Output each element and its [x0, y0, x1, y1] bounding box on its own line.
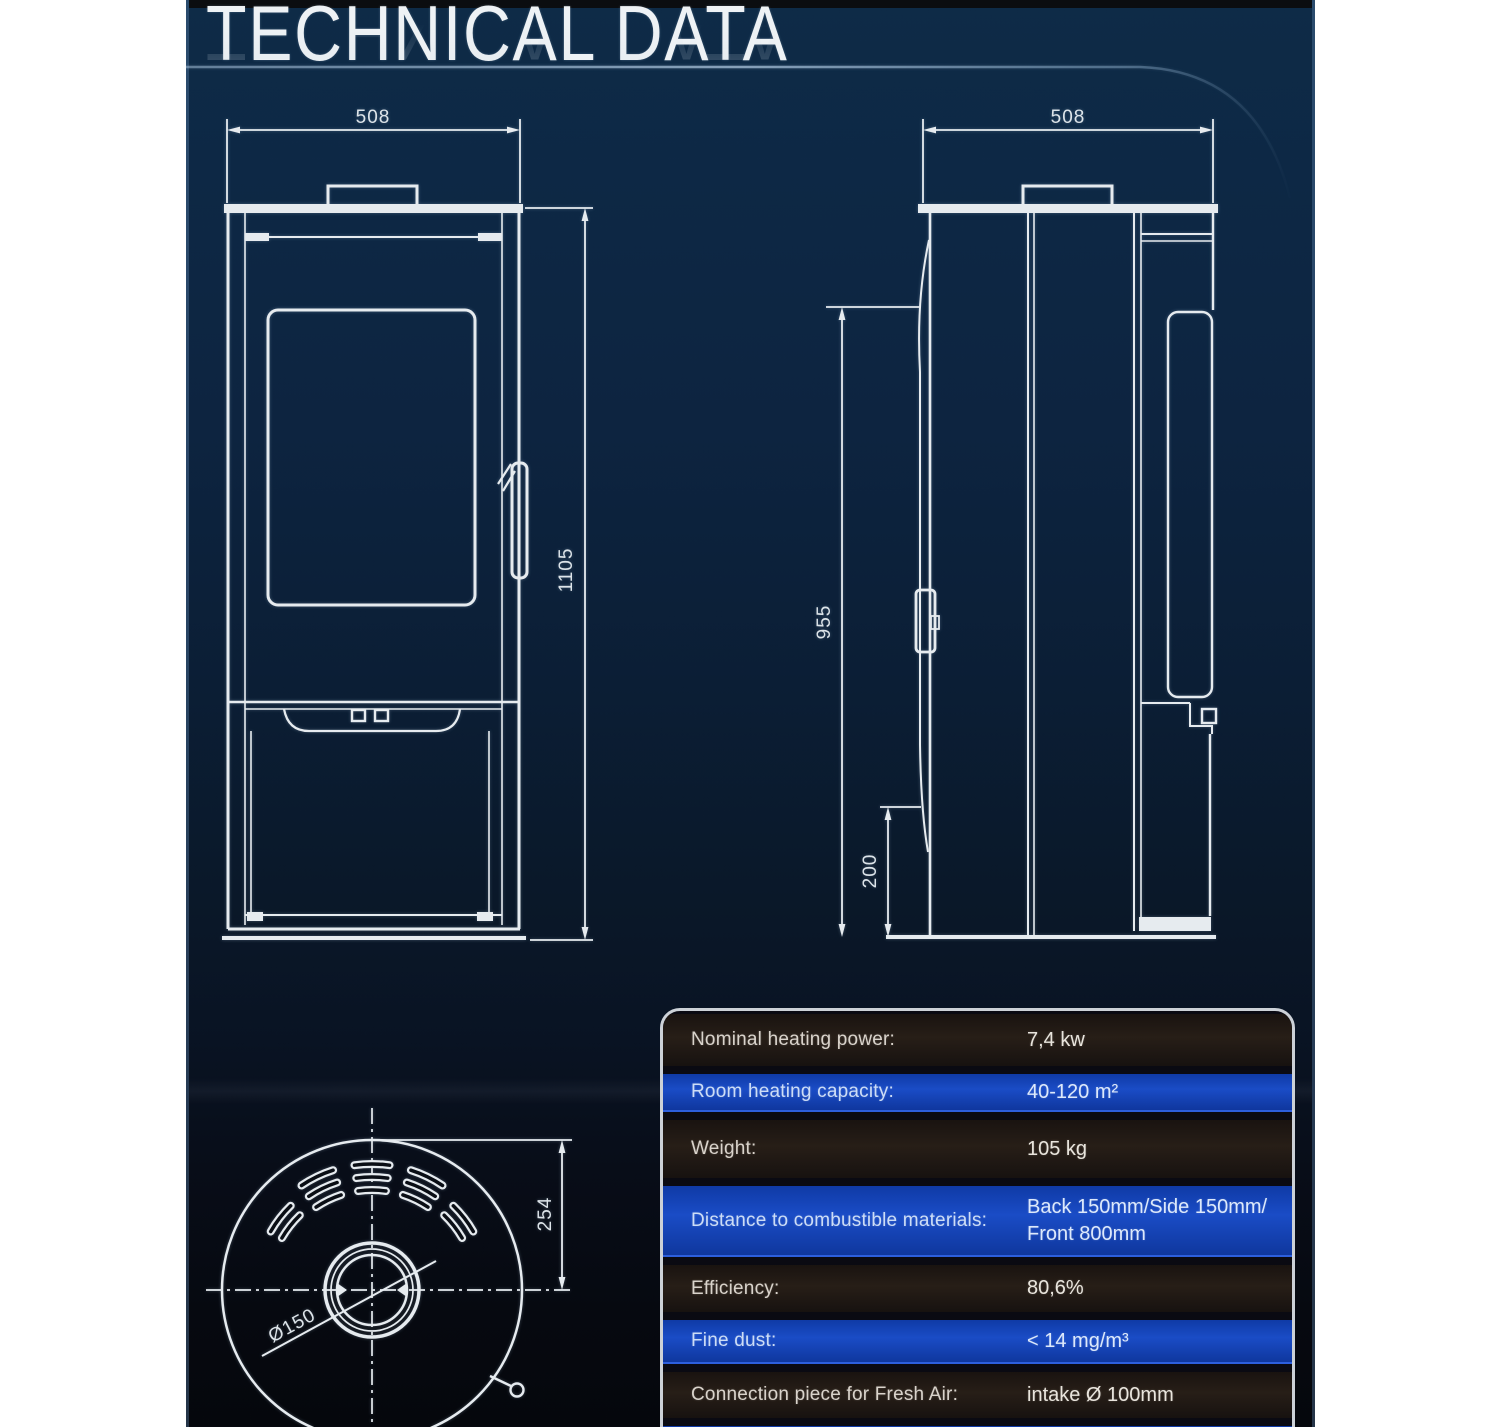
- side-door-handle: [916, 590, 935, 652]
- front-glass-door: [268, 310, 475, 605]
- spec-label: Connection piece for Fresh Air:: [663, 1384, 1027, 1406]
- spec-value: 80,6%: [1027, 1275, 1084, 1302]
- spec-table: Nominal heating power: 7,4 kw Room heati…: [660, 1008, 1295, 1427]
- front-width-label: 508: [356, 107, 391, 128]
- side-view-drawing: 508: [814, 107, 1218, 937]
- front-width-dimension: 508: [227, 107, 520, 203]
- front-height-label: 1105: [556, 548, 577, 593]
- side-base-dimension: 200: [860, 807, 921, 937]
- flue-diameter-dimension: Ø150: [262, 1261, 436, 1356]
- spec-label: Room heating capacity:: [663, 1081, 1027, 1103]
- side-height-dimension: 955: [814, 307, 921, 937]
- side-base-label: 200: [860, 854, 881, 889]
- title-underline-swoosh: [186, 67, 1290, 198]
- spec-value-line1: Back 150mm/Side 150mm/: [1027, 1194, 1267, 1221]
- technical-data-sheet: TECHNICAL DATA TECHNICAL DATA 508: [0, 0, 1500, 1427]
- side-depth-dimension: 508: [923, 107, 1213, 203]
- table-row: Efficiency: 80,6%: [663, 1265, 1292, 1312]
- spec-label: Efficiency:: [663, 1278, 1027, 1300]
- spec-value: Back 150mm/Side 150mm/ Front 800mm: [1027, 1194, 1267, 1248]
- side-height-label: 955: [814, 605, 835, 640]
- table-row: Room heating capacity: 40-120 m²: [663, 1074, 1292, 1112]
- spec-value-line2: Front 800mm: [1027, 1221, 1267, 1248]
- flue-diameter-label: Ø150: [265, 1305, 319, 1348]
- table-row: Connection piece for Fresh Air: intake Ø…: [663, 1372, 1292, 1418]
- front-view-drawing: 508: [222, 107, 593, 940]
- spec-label: Weight:: [663, 1138, 1027, 1160]
- spec-value: intake Ø 100mm: [1027, 1382, 1174, 1409]
- side-depth-label: 508: [1051, 107, 1086, 128]
- front-height-dimension: 1105: [525, 208, 593, 940]
- spec-value: 105 kg: [1027, 1136, 1087, 1163]
- spec-label: Fine dust:: [663, 1330, 1027, 1352]
- spec-value: < 14 mg/m³: [1027, 1328, 1129, 1355]
- table-row: Distance to combustible materials: Back …: [663, 1186, 1292, 1257]
- spec-label: Nominal heating power:: [663, 1029, 1027, 1051]
- side-rear-shield: [1168, 312, 1212, 697]
- top-view-drawing: Ø150 254: [206, 1108, 572, 1427]
- spec-value: 40-120 m²: [1027, 1079, 1118, 1106]
- spec-value: 7,4 kw: [1027, 1027, 1085, 1054]
- damper-knob: [490, 1376, 524, 1397]
- top-radius-label: 254: [535, 1197, 556, 1232]
- table-row: Weight: 105 kg: [663, 1120, 1292, 1178]
- table-row: Nominal heating power: 7,4 kw: [663, 1014, 1292, 1066]
- table-row: Fine dust: < 14 mg/m³: [663, 1320, 1292, 1364]
- spec-label: Distance to combustible materials:: [663, 1210, 1027, 1232]
